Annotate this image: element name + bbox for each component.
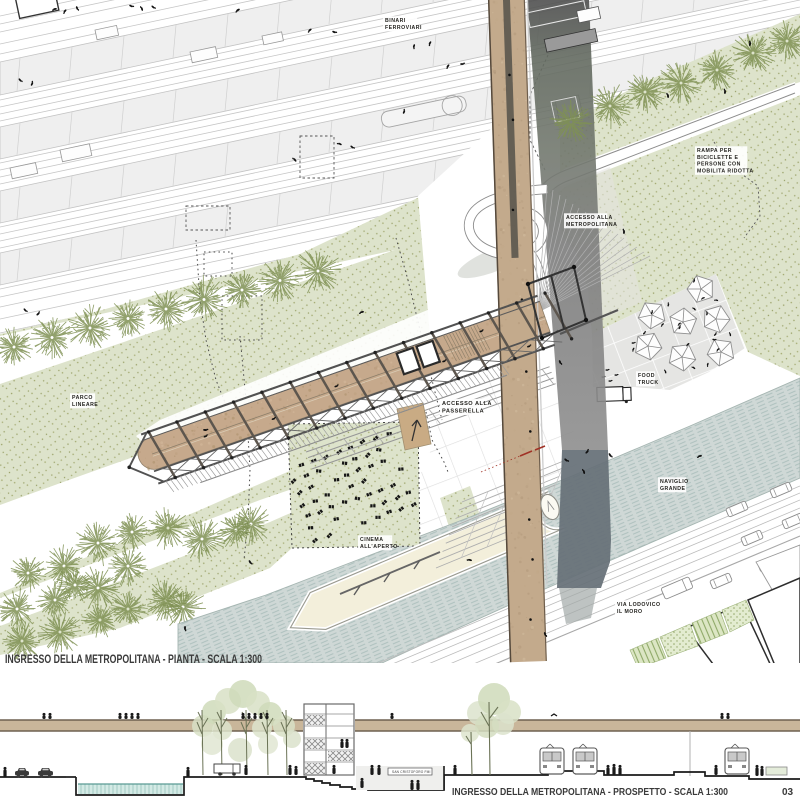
svg-text:RAMPA PER: RAMPA PER (697, 148, 732, 154)
svg-text:INGRESSO DELLA METROPOLITANA -: INGRESSO DELLA METROPOLITANA - PIANTA - … (5, 654, 262, 666)
svg-text:VIA LODOVICO: VIA LODOVICO (617, 602, 661, 608)
svg-text:BICICLETTE E: BICICLETTE E (697, 155, 738, 161)
svg-text:IL MORO: IL MORO (617, 609, 643, 615)
svg-text:LINEARE: LINEARE (72, 402, 98, 408)
svg-text:GRANDE: GRANDE (660, 486, 686, 492)
svg-text:PARCO: PARCO (72, 395, 93, 401)
svg-text:PERSONE CON: PERSONE CON (697, 162, 741, 168)
svg-text:NAVIGLIO: NAVIGLIO (660, 479, 689, 485)
svg-text:ACCESSO ALLA: ACCESSO ALLA (442, 401, 492, 407)
svg-text:TRUCK: TRUCK (638, 380, 659, 386)
svg-text:03: 03 (782, 787, 794, 798)
svg-text:METROPOLITANA: METROPOLITANA (566, 222, 617, 228)
svg-text:INGRESSO DELLA METROPOLITANA -: INGRESSO DELLA METROPOLITANA - PROSPETTO… (452, 787, 728, 798)
svg-text:FOOD: FOOD (638, 373, 655, 379)
svg-text:FERROVIARI: FERROVIARI (385, 25, 422, 31)
svg-text:CINEMA: CINEMA (360, 537, 383, 543)
svg-text:SAN CRISTOFORO FMI: SAN CRISTOFORO FMI (392, 770, 431, 774)
svg-text:MOBILITA RIDOTTA: MOBILITA RIDOTTA (697, 168, 754, 174)
svg-text:PASSERELLA: PASSERELLA (442, 408, 484, 414)
svg-text:BINARI: BINARI (385, 18, 406, 24)
svg-text:ACCESSO ALLA: ACCESSO ALLA (566, 215, 613, 221)
svg-text:ALL’APERTO: ALL’APERTO (360, 544, 398, 550)
